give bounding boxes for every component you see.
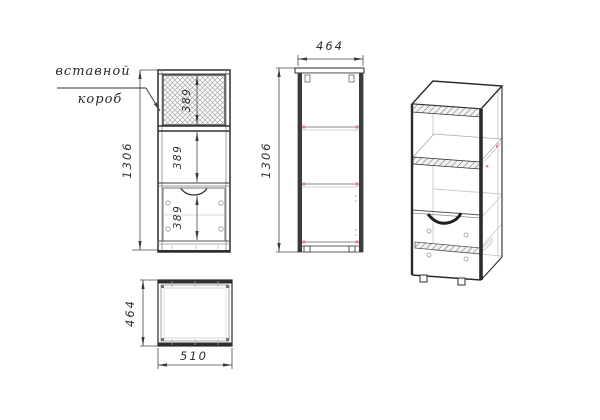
bracket	[349, 75, 354, 82]
leg	[304, 246, 310, 252]
iso-leg	[458, 278, 465, 285]
side-depth-dim: 464	[305, 39, 355, 53]
insert-box-hatch	[163, 75, 225, 125]
bracket	[305, 75, 310, 82]
side-body-outline	[298, 73, 363, 252]
top-view	[158, 280, 232, 346]
front-view	[158, 70, 230, 252]
blueprint-canvas: вставной короб 1306 389 389 389 464 1306…	[0, 0, 600, 420]
top-width-dim: 510	[169, 349, 219, 363]
insert-box-height-dim: 389	[180, 83, 194, 117]
top-view-outline	[158, 280, 232, 346]
side-top-panel	[295, 68, 364, 73]
top-depth-dim: 464	[123, 296, 137, 330]
side-view	[295, 68, 364, 252]
callout-text-line2: короб	[75, 92, 125, 108]
iso-view	[412, 81, 502, 285]
callout-text-line1: вставной	[53, 64, 133, 80]
iso-drawer-band	[415, 242, 481, 254]
leg	[349, 246, 355, 252]
side-total-height-dim: 1306	[259, 138, 273, 182]
middle-section-height-dim: 389	[171, 140, 185, 174]
linework	[0, 0, 600, 420]
iso-leg	[420, 275, 427, 282]
front-total-height-dim: 1306	[120, 138, 134, 182]
drawer-section-height-dim: 389	[171, 200, 185, 234]
